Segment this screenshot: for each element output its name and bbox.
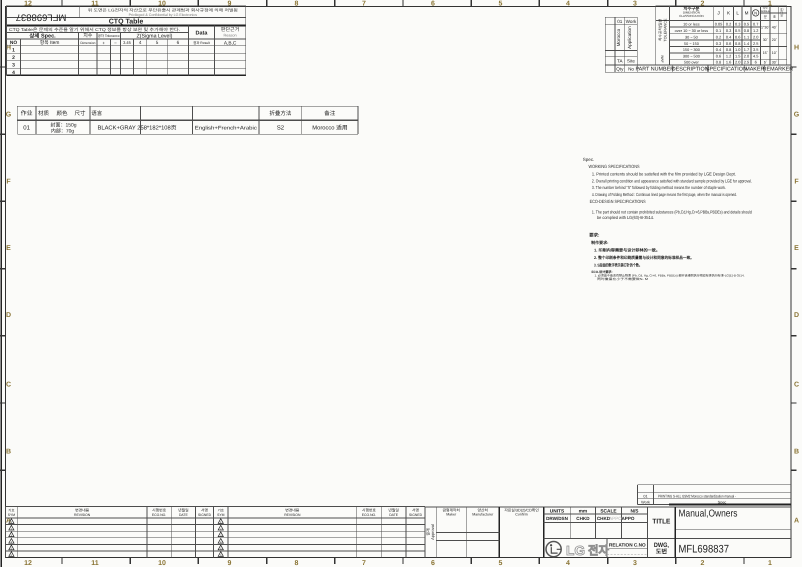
svg-text:2.0: 2.0 — [744, 54, 750, 59]
svg-text:변경내용: 변경내용 — [285, 508, 299, 513]
svg-text:시행번호: 시행번호 — [152, 508, 166, 513]
svg-text:±MM: ±MM — [661, 55, 665, 63]
svg-text:1.0: 1.0 — [735, 47, 741, 52]
svg-text:H: H — [794, 44, 799, 51]
svg-text:封面：150g: 封面：150g — [50, 121, 76, 128]
svg-text:판단근거: 판단근거 — [221, 26, 239, 33]
svg-text:Reason: Reason — [224, 34, 237, 38]
svg-text:MFL698837: MFL698837 — [679, 543, 730, 555]
svg-text:MFL698837: MFL698837 — [16, 12, 67, 23]
svg-text:0.2: 0.2 — [716, 34, 721, 39]
svg-text:D: D — [6, 312, 11, 319]
svg-text:MAKER: MAKER — [745, 67, 764, 73]
svg-text:1°30˝: 1°30˝ — [761, 25, 770, 29]
svg-text:Work: Work — [641, 500, 650, 504]
svg-text:3.5: 3.5 — [753, 47, 758, 52]
svg-text:치수공차(일반: 치수공차(일반 — [658, 18, 663, 41]
svg-text:材质: 材质 — [38, 110, 50, 117]
svg-text:REVISION: REVISION — [284, 513, 301, 517]
svg-text:APPO: APPO — [621, 516, 634, 521]
svg-text:40˝: 40˝ — [772, 25, 778, 29]
svg-text:30 ~ 50: 30 ~ 50 — [685, 35, 698, 39]
svg-text:11: 11 — [91, 0, 99, 7]
svg-text:Morocco: Morocco — [616, 28, 621, 46]
svg-text:0.3: 0.3 — [716, 41, 721, 46]
svg-text:内部：70g: 内部：70g — [51, 127, 75, 134]
svg-text:Data: Data — [196, 30, 209, 36]
svg-text:1.4: 1.4 — [744, 41, 750, 46]
svg-text:150 ~ 300: 150 ~ 300 — [683, 48, 700, 52]
svg-text:1. The part should not conta: 1. The part should not contain prohibite… — [592, 210, 752, 215]
svg-text:15˝: 15˝ — [763, 51, 769, 55]
svg-text:01: 01 — [643, 494, 647, 498]
svg-text:0.8: 0.8 — [744, 28, 749, 33]
svg-text:01: 01 — [23, 124, 30, 131]
svg-text:Spec.: Spec. — [583, 157, 595, 162]
svg-text:6: 6 — [755, 60, 757, 65]
svg-text:B: B — [794, 448, 799, 455]
svg-text:SCALE: SCALE — [600, 508, 617, 514]
svg-text:2: 2 — [12, 55, 15, 61]
svg-text:Privileged & Confidential by L: Privileged & Confidential by LG Electron… — [129, 13, 198, 17]
svg-text:CTQ Table: CTQ Table — [109, 18, 144, 26]
svg-text:2.5: 2.5 — [753, 41, 758, 46]
svg-text:2: 2 — [701, 560, 705, 567]
svg-text:CTQ Table은 문제의 수준을 알기 위해서 CTQ: CTQ Table은 문제의 수준을 알기 위해서 CTQ 정보를 항상 보완 … — [9, 27, 180, 32]
svg-text:9: 9 — [228, 0, 232, 7]
svg-text:1.7: 1.7 — [744, 47, 749, 52]
svg-text:4: 4 — [12, 70, 15, 76]
svg-text:G: G — [6, 111, 12, 118]
svg-text:0.5: 0.5 — [735, 28, 740, 33]
svg-text:G: G — [794, 111, 800, 118]
svg-text:TA: TA — [617, 59, 623, 64]
svg-text:30˝: 30˝ — [763, 38, 769, 42]
svg-text:B: B — [6, 448, 11, 455]
svg-text:+: + — [102, 40, 105, 45]
svg-text:ANGLE: ANGLE — [761, 10, 770, 13]
svg-text:3. The number behind "S" foll: 3. The number behind "S" followed by fol… — [592, 185, 726, 190]
svg-text:0.05: 0.05 — [715, 21, 723, 26]
svg-text:2.0: 2.0 — [735, 60, 741, 65]
svg-text:1.2: 1.2 — [753, 28, 758, 33]
svg-text:CLASSIFICATION: CLASSIFICATION — [679, 14, 703, 18]
svg-text:C: C — [6, 381, 11, 388]
svg-text:LG: LG — [566, 543, 585, 558]
svg-text:RELATION C.NO: RELATION C.NO — [609, 542, 646, 547]
svg-text:0.8: 0.8 — [735, 41, 740, 46]
svg-text:mm: mm — [579, 509, 588, 514]
svg-text:2: 2 — [701, 0, 705, 7]
svg-text:항목 Item: 항목 Item — [40, 40, 60, 46]
svg-text:Confirm: Confirm — [515, 513, 528, 517]
svg-text:3: 3 — [633, 560, 637, 567]
svg-text:2.0: 2.0 — [753, 34, 759, 39]
svg-text:0.3: 0.3 — [735, 21, 740, 26]
svg-text:0.6: 0.6 — [726, 41, 731, 46]
svg-text:서명: 서명 — [201, 508, 208, 513]
svg-text:0.4: 0.4 — [716, 47, 722, 52]
svg-text:E: E — [6, 245, 11, 252]
svg-text:5: 5 — [499, 0, 503, 7]
svg-text:ECO-DESIGN SPECIFICATIONS: ECO-DESIGN SPECIFICATIONS — [590, 199, 646, 204]
svg-text:N/S: N/S — [631, 508, 640, 514]
svg-text:0.4: 0.4 — [726, 34, 732, 39]
svg-text:4: 4 — [566, 0, 570, 7]
svg-text:1.6: 1.6 — [726, 60, 731, 65]
svg-text:be complied with LG(63)-B-3514: be complied with LG(63)-B-3514. — [597, 215, 654, 220]
svg-text:制作要求:: 制作要求: — [591, 240, 608, 245]
svg-text:语言: 语言 — [91, 110, 103, 117]
svg-text:TITLE: TITLE — [652, 518, 670, 525]
svg-text:8: 8 — [295, 560, 299, 567]
svg-text:UNITS: UNITS — [550, 508, 565, 514]
svg-text:Manual,Owners: Manual,Owners — [679, 509, 738, 520]
svg-text:F: F — [6, 178, 11, 185]
svg-text:NO: NO — [10, 40, 17, 46]
svg-text:0.2: 0.2 — [726, 21, 731, 26]
svg-text:APPO: APPO — [609, 516, 622, 521]
svg-text:초: 초 — [773, 15, 776, 19]
svg-text:1. Printed contents should be: 1. Printed contents should be satisfied … — [592, 171, 736, 176]
svg-text:尺寸: 尺寸 — [74, 110, 86, 117]
svg-text:4.5: 4.5 — [753, 54, 758, 59]
svg-text:서명: 서명 — [412, 508, 419, 513]
svg-text:0.8: 0.8 — [716, 60, 721, 65]
svg-text:No: No — [628, 67, 634, 72]
svg-text:SPECIFICATION: SPECIFICATION — [706, 67, 747, 73]
svg-text:8: 8 — [295, 0, 299, 7]
svg-text:7: 7 — [362, 560, 366, 567]
svg-text:11: 11 — [91, 560, 99, 567]
svg-text:BLACK+GRAY 258*182*108页: BLACK+GRAY 258*182*108页 — [98, 124, 177, 131]
svg-text:도번: 도번 — [656, 548, 668, 556]
svg-text:0.3: 0.3 — [726, 28, 731, 33]
svg-text:4. Drawing of Folding Method: 4. Drawing of Folding Method : Continous… — [592, 192, 737, 197]
svg-text:치수: 치수 — [83, 32, 93, 39]
svg-text:2. Overall printing condition: 2. Overall printing condition and appear… — [592, 178, 752, 183]
svg-text:변경내용: 변경내용 — [75, 508, 89, 513]
svg-text:M: M — [745, 10, 749, 15]
svg-text:Approval: Approval — [430, 524, 435, 540]
svg-text:1: 1 — [768, 560, 772, 567]
svg-text:30˝: 30˝ — [772, 61, 778, 65]
svg-text:3: 3 — [12, 63, 15, 69]
svg-text:10˝: 10˝ — [772, 51, 778, 55]
svg-text:기호: 기호 — [8, 509, 14, 513]
svg-text:PART NUMBER: PART NUMBER — [635, 67, 674, 73]
svg-text:기호: 기호 — [218, 509, 224, 513]
svg-text:SIGNED: SIGNED — [409, 513, 423, 517]
svg-text:E: E — [794, 245, 799, 252]
svg-text:Work: Work — [626, 19, 637, 24]
svg-text:6: 6 — [177, 40, 180, 45]
svg-text:DESCRIPTION: DESCRIPTION — [672, 67, 709, 73]
svg-text:500 over: 500 over — [684, 61, 700, 65]
svg-text:01: 01 — [617, 19, 623, 24]
svg-text:Application: Application — [627, 26, 632, 49]
svg-text:3: 3 — [633, 0, 637, 7]
svg-text:0.5: 0.5 — [744, 21, 749, 26]
svg-text:N: N — [754, 11, 757, 16]
svg-text:상세 Spec.: 상세 Spec. — [29, 32, 56, 39]
svg-text:Manufacturer: Manufacturer — [472, 513, 494, 517]
svg-text:1.2: 1.2 — [726, 54, 731, 59]
svg-text:A,B,C: A,B,C — [224, 40, 237, 46]
svg-text:9: 9 — [228, 560, 232, 567]
svg-text:ECO.NO.: ECO.NO. — [362, 513, 376, 517]
svg-text:10: 10 — [158, 0, 166, 7]
svg-text:년월일: 년월일 — [388, 508, 399, 513]
svg-text:A: A — [794, 517, 799, 524]
svg-text:2.5: 2.5 — [744, 60, 749, 65]
svg-text:PRINTING S-ALL GSM2 Morocco st: PRINTING S-ALL GSM2 Morocco standardizat… — [658, 494, 737, 498]
svg-text:12: 12 — [24, 560, 32, 567]
svg-text:0.6: 0.6 — [716, 54, 721, 59]
svg-text:10 or less: 10 or less — [683, 22, 700, 26]
svg-text:English+French+Arabic: English+French+Arabic — [195, 125, 257, 131]
svg-text:Spec: Spec — [718, 500, 727, 504]
svg-text:同时重量在小于不需要做N- M: 同时重量在小于不需要做N- M — [597, 277, 649, 281]
svg-text:전자: 전자 — [588, 544, 609, 558]
svg-text:분: 분 — [764, 15, 767, 19]
svg-text:S2: S2 — [277, 124, 285, 131]
svg-text:−: − — [114, 40, 117, 45]
svg-text:Site: Site — [627, 59, 635, 64]
svg-text:1. 印刷内容需要与设计菲林的一致。: 1. 印刷内容需要与设计菲林的一致。 — [594, 248, 660, 253]
svg-text:6: 6 — [431, 0, 435, 7]
svg-text:ECO.NO.: ECO.NO. — [152, 513, 166, 517]
svg-text:Maker: Maker — [446, 513, 457, 517]
svg-text:SYM: SYM — [8, 513, 16, 517]
svg-text:1.5: 1.5 — [735, 54, 740, 59]
svg-text:0.8: 0.8 — [726, 47, 731, 52]
svg-text:공차 Tolerance: 공차 Tolerance — [98, 34, 120, 38]
svg-text:CHKD: CHKD — [576, 516, 590, 521]
svg-text:0.7: 0.7 — [753, 21, 758, 26]
svg-text:D: D — [794, 312, 799, 319]
svg-text:20˝: 20˝ — [772, 38, 778, 42]
svg-text:SYM: SYM — [217, 513, 225, 517]
svg-text:년월일: 년월일 — [178, 508, 189, 513]
svg-text:1.1: 1.1 — [744, 34, 749, 39]
svg-text:비고란: 비고란 — [780, 8, 784, 17]
svg-text:DATE: DATE — [179, 513, 189, 517]
svg-text:C: C — [794, 381, 799, 388]
svg-text:Qty: Qty — [616, 67, 624, 72]
svg-text:결과 Result: 결과 Result — [193, 41, 210, 45]
svg-text:4: 4 — [566, 560, 570, 567]
svg-text:要求:: 要求: — [589, 233, 600, 238]
svg-text:위 도면은 LG전자의 자산으로 무단유출시 관계법과 회사: 위 도면은 LG전자의 자산으로 무단유출시 관계법과 회사규정에 의해 처벌됨 — [88, 7, 238, 12]
svg-text:L: L — [736, 10, 739, 15]
svg-text:作业: 作业 — [21, 109, 33, 117]
svg-text:5: 5 — [156, 40, 159, 45]
svg-text:备注: 备注 — [324, 110, 336, 117]
svg-text:4: 4 — [139, 40, 142, 45]
svg-text:0.1: 0.1 — [716, 28, 721, 33]
svg-text:REMARKER: REMARKER — [763, 67, 794, 73]
svg-text:1: 1 — [12, 48, 15, 54]
svg-text:WORKING SPECIFICATIONS: WORKING SPECIFICATIONS — [589, 164, 640, 169]
svg-text:5: 5 — [499, 560, 503, 567]
svg-text:TOLERANCE: TOLERANCE — [664, 18, 668, 42]
svg-text:SIGNED: SIGNED — [198, 513, 212, 517]
svg-text:REVISION: REVISION — [74, 513, 91, 517]
svg-text:F: F — [794, 178, 799, 185]
svg-text:Morocco 适用: Morocco 适用 — [312, 124, 348, 131]
svg-text:over 10 ~ 30 or less: over 10 ~ 30 or less — [675, 29, 709, 33]
svg-text:3.45: 3.45 — [123, 40, 132, 45]
svg-text:시행번호: 시행번호 — [362, 508, 376, 513]
svg-text:DRW/DSN: DRW/DSN — [546, 516, 569, 521]
svg-text:颜色: 颜色 — [56, 110, 68, 117]
svg-text:10: 10 — [158, 560, 166, 567]
svg-text:300 ~ 500: 300 ~ 500 — [683, 55, 700, 59]
svg-text:12: 12 — [24, 0, 32, 7]
svg-text:3. S后面的数字表示装订针的个数。: 3. S后面的数字表示装订针的个数。 — [594, 263, 642, 268]
svg-text:50 ~ 150: 50 ~ 150 — [684, 42, 699, 46]
svg-text:2. 整个印刷条件和印刷质量需与设计和同意的标准样品一致。: 2. 整个印刷条件和印刷质量需与设计和同意的标准样品一致。 — [594, 255, 694, 260]
svg-text:7: 7 — [362, 0, 366, 7]
svg-text:6: 6 — [431, 560, 435, 567]
svg-text:折叠方法: 折叠方法 — [269, 110, 292, 117]
svg-text:Dimension: Dimension — [80, 41, 95, 45]
svg-text:Z(Sigma Level): Z(Sigma Level) — [137, 34, 173, 40]
svg-text:DATE: DATE — [389, 513, 399, 517]
svg-text:0.6: 0.6 — [735, 34, 740, 39]
